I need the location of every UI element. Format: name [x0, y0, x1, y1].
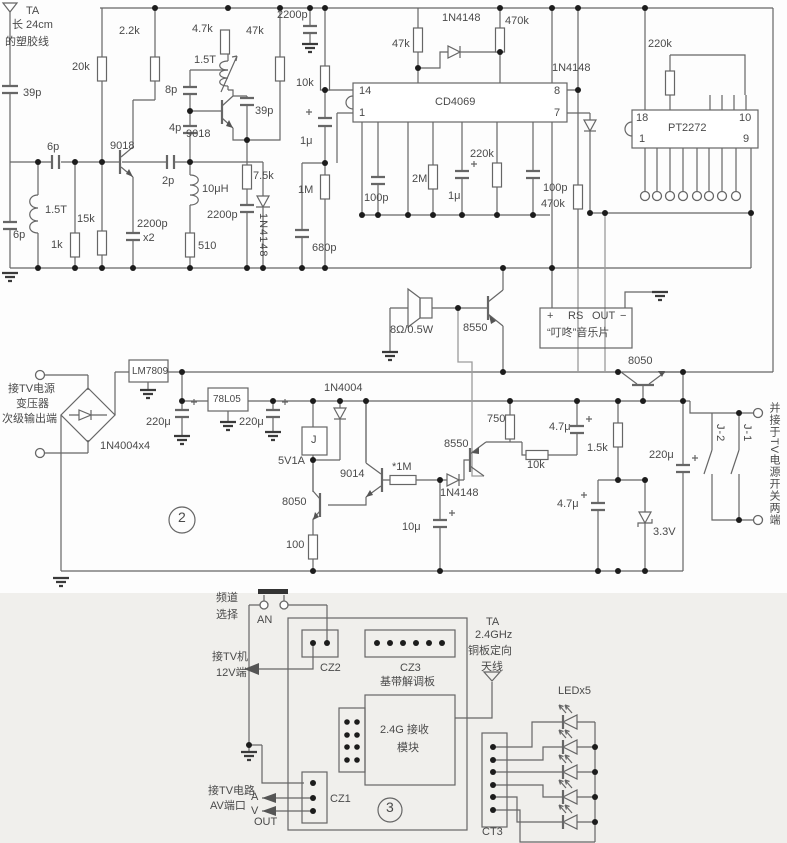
button-an-label: AN: [257, 614, 272, 627]
ant2-note-1: 铜板定向: [468, 645, 512, 658]
ic2-pin9: 9: [743, 133, 749, 146]
input-note-2: 变压器: [16, 398, 49, 411]
ic2-pin10: 10: [739, 112, 751, 125]
music-name: “叮咚”音乐片: [547, 327, 609, 340]
res-1m-star-label: *1M: [392, 461, 412, 474]
cap-220u-c-label: 220μ: [649, 449, 674, 462]
music-rs: RS: [568, 310, 583, 323]
cap-1u-b-label: 1μ: [448, 190, 460, 203]
reg1-label: LM7809: [132, 365, 168, 378]
res-1m-label: 1M: [298, 184, 313, 197]
cap-220u-b-label: 220μ: [239, 416, 264, 429]
transistor-q2-9018: [222, 90, 233, 128]
speaker-icon: [408, 289, 432, 327]
q2-label: 9018: [186, 128, 210, 141]
diode-d1-label: 1N4148: [257, 213, 269, 258]
diode-d5-label: 1N4148: [440, 487, 479, 500]
cz2-label: CZ2: [320, 662, 341, 675]
terminals: [36, 192, 763, 610]
cap-10u-label: 10μ: [402, 521, 421, 534]
music-out: OUT: [592, 310, 615, 323]
res-2-2k-label: 2.2k: [119, 25, 140, 38]
res-47k-b-label: 47k: [392, 38, 410, 51]
q5-label: 8050: [282, 496, 306, 509]
cap-6p-b-label: 6p: [13, 229, 25, 242]
zener-3-3v-label: 3.3V: [653, 526, 676, 539]
transistor-q5-8050: [313, 460, 320, 535]
relay-contact-j2-label: J-2: [714, 424, 726, 442]
diode-d3-label: 1N4148: [552, 62, 591, 75]
res-100-label: 100: [286, 539, 304, 552]
ic2-name: PT2272: [668, 122, 707, 135]
channel-note-1: 频道: [216, 592, 238, 605]
cap-2200p-b-label: 2200p: [137, 218, 168, 231]
res-220k-b-label: 220k: [648, 38, 672, 51]
antenna-note-1: 长 24cm: [12, 19, 53, 32]
cz3-label: CZ3: [400, 662, 421, 675]
cap-680p-label: 680p: [312, 242, 336, 255]
cap-100p-b-label: 100p: [543, 182, 567, 195]
res-470k-b-label: 470k: [541, 198, 565, 211]
transistor-q3-8550: [488, 290, 503, 326]
coil-1-5t-b-label: 1.5T: [194, 54, 216, 67]
zener-5v1a-label: 5V1A: [278, 455, 305, 468]
av-a-label: A: [251, 791, 258, 804]
av-note-2: AV端口: [210, 800, 246, 813]
channel-note-2: 选择: [216, 609, 238, 622]
section-3-number: 3: [386, 801, 394, 814]
bridge-label: 1N4004x4: [100, 440, 150, 453]
ant2-freq-label: 2.4GHz: [475, 629, 512, 642]
ic1-pin1: 1: [359, 107, 365, 120]
ic1-pin8: 8: [554, 85, 560, 98]
q7-label: 8550: [444, 438, 468, 451]
switch-note: 并接于TV电源开关两端: [766, 402, 782, 526]
tv12-note-2: 12V端: [216, 667, 247, 680]
cap-8p-label: 8p: [165, 84, 177, 97]
module-name-2: 模块: [397, 742, 419, 755]
speaker-label: 8Ω/0.5W: [390, 324, 433, 337]
music-plus: +: [547, 310, 553, 323]
res-20k-label: 20k: [72, 61, 90, 74]
res-10k-label: 10k: [296, 77, 314, 90]
ic1-name: CD4069: [435, 96, 475, 109]
av-out-label: OUT: [254, 816, 277, 829]
res-15k-label: 15k: [77, 213, 95, 226]
antenna-note-2: 的塑胶线: [5, 36, 49, 49]
cap-4-7u-b-label: 4.7μ: [557, 498, 579, 511]
q4-label: 8050: [628, 355, 652, 368]
input-note-1: 接TV电源: [8, 383, 55, 396]
res-7-5k-label: 7.5k: [253, 170, 274, 183]
ct3-label: CT3: [482, 826, 503, 839]
ic1-pin7: 7: [554, 107, 560, 120]
cap-2p-label: 2p: [162, 175, 174, 188]
cap-1u-a-label: 1μ: [300, 135, 312, 148]
channel-button-icon: [258, 589, 288, 594]
q3-label: 8550: [463, 322, 487, 335]
av-note-1: 接TV电路: [208, 785, 255, 798]
diode-d2-label: 1N4148: [442, 12, 481, 25]
cap-4p-label: 4p: [169, 122, 181, 135]
ic2-pin1: 1: [639, 133, 645, 146]
tv12-note-1: 接TV机: [212, 651, 248, 664]
ant2-note-2: 天线: [481, 661, 503, 674]
res-4-7k-label: 4.7k: [192, 23, 213, 36]
cz1-label: CZ1: [330, 793, 351, 806]
cap-39p-b-label: 39p: [255, 105, 273, 118]
board-name: 基带解调板: [380, 676, 435, 689]
res-470k-a-label: 470k: [505, 15, 529, 28]
module-name-1: 2.4G 接收: [380, 724, 429, 737]
antenna-icon: [3, 3, 17, 12]
q1-label: 9018: [110, 140, 134, 153]
res-510-label: 510: [198, 240, 216, 253]
cap-6p-a-label: 6p: [47, 141, 59, 154]
res-2m-label: 2M: [412, 173, 427, 186]
res-47k-a-label: 47k: [246, 25, 264, 38]
cap-2200p-c-label: 2200p: [207, 209, 238, 222]
cap-4-7u-a-label: 4.7μ: [549, 421, 571, 434]
res-10k-b-label: 10k: [527, 459, 545, 472]
music-minus: −: [620, 310, 626, 323]
section-2-number: 2: [178, 511, 186, 524]
cap-2200p-x2-label: x2: [143, 232, 155, 245]
reg2-label: 78L05: [213, 393, 241, 406]
q6-label: 9014: [340, 468, 364, 481]
transistor-q4-8050: [621, 371, 683, 385]
ic1-pin14: 14: [359, 85, 371, 98]
res-220k-a-label: 220k: [470, 148, 494, 161]
ic2-pin18: 18: [636, 112, 648, 125]
coil-10uh-label: 10μH: [202, 183, 229, 196]
schematic-page: TA 长 24cm 的塑胶线 39p 6p 1.5T 6p 1k 15k 20k…: [0, 0, 787, 843]
relay-label: J: [311, 434, 317, 447]
res-1-5k-label: 1.5k: [587, 442, 608, 455]
res-1k-label: 1k: [51, 239, 63, 252]
cd4069-stage-wires: [302, 8, 550, 268]
diode-d4-label: 1N4004: [324, 382, 363, 395]
antenna-label: TA: [26, 5, 39, 18]
cap-100p-a-label: 100p: [364, 192, 388, 205]
cap-39p-label: 39p: [23, 87, 41, 100]
input-note-3: 次级输出端: [2, 413, 57, 426]
coil-1-5t-a-label: 1.5T: [45, 204, 67, 217]
ant2-ta-label: TA: [486, 616, 499, 629]
res-750-label: 750: [487, 413, 505, 426]
cap-2200p-d-label: 2200p: [277, 9, 308, 22]
led-array-label: LEDx5: [558, 685, 591, 698]
relay-contact-j1-label: J-1: [741, 424, 753, 442]
transistor-q6-9014: [366, 401, 382, 497]
cap-220u-a-label: 220μ: [146, 416, 171, 429]
